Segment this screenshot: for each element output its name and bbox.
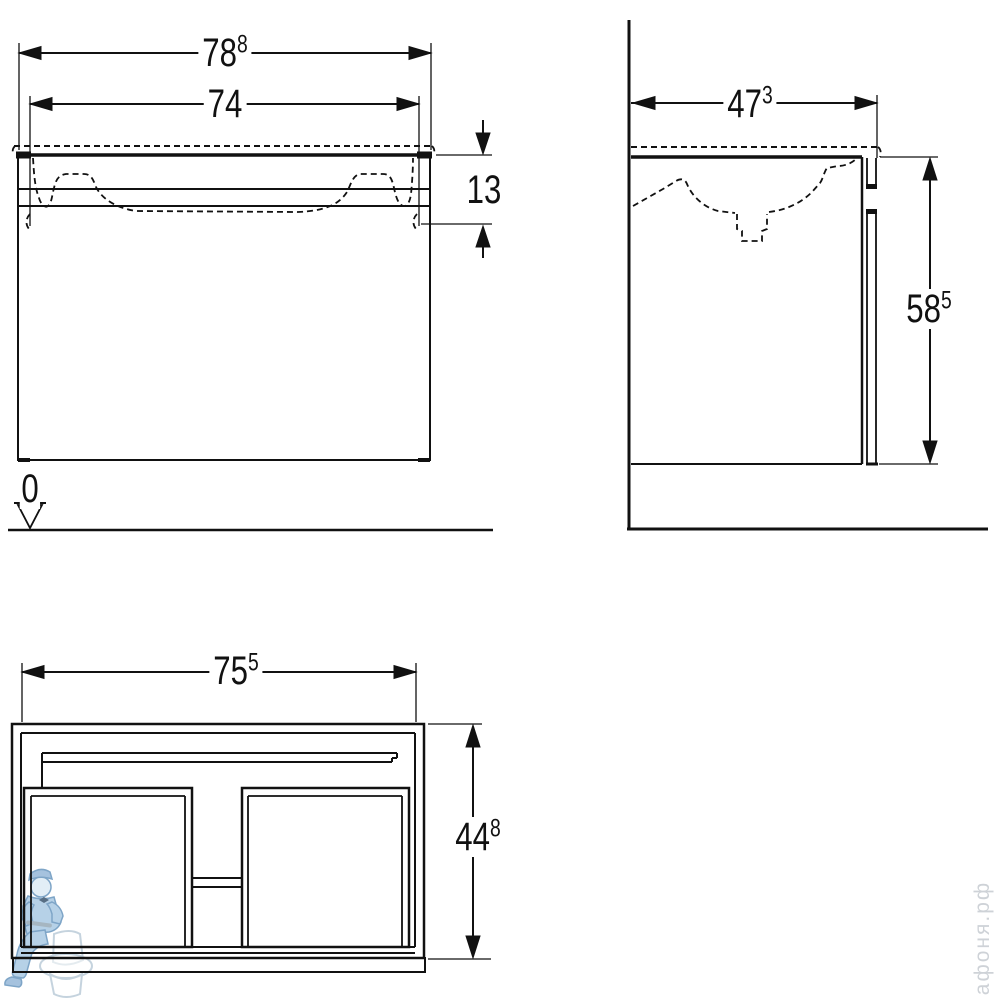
cabinet-width-label: 755 (209, 651, 262, 691)
technical-drawing-page: афоня.рф (0, 0, 1000, 1000)
floor-level-label: 0 (20, 469, 40, 509)
front-cabinet-body (16, 155, 432, 460)
side-washbasin-dashed-outline (631, 147, 881, 241)
side-height-label: 585 (902, 289, 955, 329)
cabinet-right-door-panel (242, 788, 409, 947)
side-door-front (866, 158, 878, 464)
side-view (627, 20, 988, 529)
cabinet-front-view (12, 663, 491, 972)
cabinet-top-rail (42, 753, 397, 788)
cabinet-height-label: 448 (451, 817, 504, 857)
side-depth-label: 473 (723, 84, 776, 124)
cabinet-left-door-panel (24, 788, 192, 947)
front-washbasin-dashed-outline (13, 146, 435, 229)
cabinet-plinth (13, 958, 425, 972)
front-basin-width-label: 74 (204, 84, 247, 124)
front-overall-width-label: 788 (198, 33, 251, 73)
front-apron-height-label: 13 (463, 170, 506, 210)
side-cabinet-body (631, 157, 878, 464)
floor-datum (8, 503, 493, 530)
cabinet-center-shelf (192, 878, 242, 887)
front-view (8, 43, 493, 530)
